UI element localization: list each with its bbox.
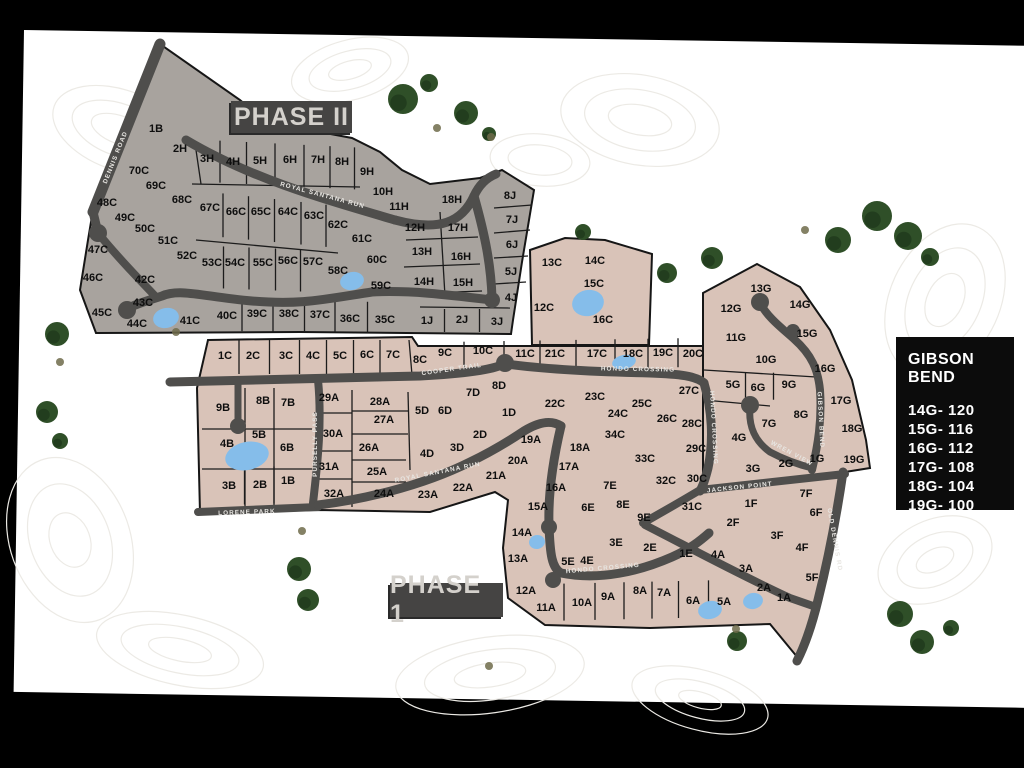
lot-label-1F: 1F: [745, 498, 758, 510]
lot-label-10G: 10G: [756, 354, 777, 366]
lot-label-1E: 1E: [679, 548, 692, 560]
lot-label-65C: 65C: [251, 206, 271, 218]
tree-shade: [38, 409, 50, 421]
lot-label-25A: 25A: [367, 466, 387, 478]
tree-shade: [922, 254, 932, 264]
lot-label-4B: 4B: [220, 438, 234, 450]
lot-label-5B: 5B: [252, 429, 266, 441]
lot-label-16A: 16A: [546, 482, 566, 494]
lot-label-20A: 20A: [508, 455, 528, 467]
lot-label-5A: 5A: [717, 596, 731, 608]
lot-label-19C: 19C: [653, 347, 673, 359]
lot-label-8C: 8C: [413, 354, 427, 366]
lot-label-38C: 38C: [279, 308, 299, 320]
lot-label-12A: 12A: [516, 585, 536, 597]
lot-label-46C: 46C: [83, 272, 103, 284]
lot-label-68C: 68C: [172, 194, 192, 206]
grass-tuft: [801, 226, 809, 234]
lot-label-13G: 13G: [751, 283, 772, 295]
lot-label-8H: 8H: [335, 156, 349, 168]
lot-label-8D: 8D: [492, 380, 506, 392]
tree-shade: [912, 638, 925, 651]
lot-label-6E: 6E: [581, 502, 594, 514]
lot-label-57C: 57C: [303, 256, 323, 268]
legend-item: 16G- 112: [908, 439, 1014, 458]
legend-item: 19G- 100: [908, 496, 1014, 515]
lot-label-59C: 59C: [371, 280, 391, 292]
lot-label-7A: 7A: [657, 587, 671, 599]
lot-label-62C: 62C: [328, 219, 348, 231]
tree-shade: [390, 95, 407, 112]
lot-label-8G: 8G: [794, 409, 809, 421]
lot-label-6A: 6A: [686, 595, 700, 607]
lot-label-49C: 49C: [115, 212, 135, 224]
tree-shade: [889, 610, 903, 624]
lot-label-29A: 29A: [319, 392, 339, 404]
lot-label-2G: 2G: [779, 458, 794, 470]
lot-label-2H: 2H: [173, 143, 187, 155]
lot-label-2B: 2B: [253, 479, 267, 491]
lot-label-26C: 26C: [657, 413, 677, 425]
lot-label-11A: 11A: [536, 602, 556, 614]
lot-label-3G: 3G: [746, 463, 761, 475]
lot-label-39C: 39C: [247, 308, 267, 320]
lot-label-26A: 26A: [359, 442, 379, 454]
lot-label-14C: 14C: [585, 255, 605, 267]
lot-label-69C: 69C: [146, 180, 166, 192]
grass-tuft: [56, 358, 64, 366]
lot-label-4H: 4H: [226, 156, 240, 168]
lot-label-70C: 70C: [129, 165, 149, 177]
tree-shade: [53, 439, 62, 448]
lot-label-11C: 11C: [515, 348, 535, 360]
lot-label-55C: 55C: [253, 257, 273, 269]
lot-label-10A: 10A: [572, 597, 592, 609]
lot-label-8J: 8J: [504, 190, 516, 202]
lot-label-14H: 14H: [414, 276, 434, 288]
street-label: HONDO CROSSING: [601, 365, 675, 373]
grass-tuft: [298, 527, 306, 535]
road-culdesac: [230, 418, 246, 434]
lot-label-32C: 32C: [656, 475, 676, 487]
lot-label-8B: 8B: [256, 395, 270, 407]
lot-label-11G: 11G: [726, 332, 746, 344]
lot-label-24A: 24A: [374, 488, 394, 500]
street-label: LORENE PARK: [218, 508, 276, 517]
lot-label-24C: 24C: [608, 408, 628, 420]
tree-shade: [864, 212, 881, 229]
lot-label-1A: 1A: [777, 592, 791, 604]
lot-label-7E: 7E: [603, 480, 616, 492]
phase1-sign: PHASE 1: [390, 583, 503, 617]
lot-label-30A: 30A: [323, 428, 343, 440]
lot-label-2C: 2C: [246, 350, 260, 362]
lot-label-17G: 17G: [831, 395, 852, 407]
lot-label-1B: 1B: [281, 475, 295, 487]
lot-label-7F: 7F: [800, 488, 813, 500]
tree-shade: [729, 638, 740, 649]
lot-label-17A: 17A: [559, 461, 579, 473]
grass-tuft: [732, 625, 740, 633]
lot-label-33C: 33C: [635, 453, 655, 465]
lot-label-40C: 40C: [217, 310, 237, 322]
lot-label-67C: 67C: [200, 202, 220, 214]
lot-label-13C: 13C: [542, 257, 562, 269]
lot-label-13H: 13H: [412, 246, 432, 258]
lot-label-6D: 6D: [438, 405, 452, 417]
lot-label-9A: 9A: [601, 591, 615, 603]
lot-label-4J: 4J: [505, 292, 517, 304]
lot-label-6B: 6B: [280, 442, 294, 454]
plat-map-page: DENNIS ROADROYAL SANTANA RUNCOOPER TRAIL…: [0, 0, 1024, 768]
lot-label-3E: 3E: [609, 537, 622, 549]
lot-label-9C: 9C: [438, 347, 452, 359]
lot-label-9B: 9B: [216, 402, 230, 414]
lot-label-15G: 15G: [797, 328, 818, 340]
road-culdesac: [89, 224, 107, 242]
lot-label-6C: 6C: [360, 349, 374, 361]
road-culdesac: [541, 519, 557, 535]
grass-tuft: [172, 328, 180, 336]
lot-label-29C: 29C: [686, 443, 706, 455]
lot-label-43C: 43C: [133, 297, 153, 309]
legend-item: 17G- 108: [908, 458, 1014, 477]
lot-label-48C: 48C: [97, 197, 117, 209]
lot-label-3C: 3C: [279, 350, 293, 362]
lot-label-31C: 31C: [682, 501, 702, 513]
lot-label-3F: 3F: [771, 530, 784, 542]
lot-label-3B: 3B: [222, 480, 236, 492]
lot-label-5H: 5H: [253, 155, 267, 167]
lot-label-54C: 54C: [225, 257, 245, 269]
lot-label-32A: 32A: [324, 488, 344, 500]
grass-tuft: [433, 124, 441, 132]
lot-label-36C: 36C: [340, 313, 360, 325]
lot-label-52C: 52C: [177, 250, 197, 262]
lot-label-4F: 4F: [796, 542, 809, 554]
tree-shade: [827, 236, 841, 250]
tree-shade: [421, 80, 431, 90]
lot-label-64C: 64C: [278, 206, 298, 218]
tree-shade: [47, 330, 60, 343]
lot-label-7G: 7G: [762, 418, 777, 430]
lot-label-6G: 6G: [751, 382, 766, 394]
grass-tuft: [487, 133, 495, 141]
tree-shade: [944, 626, 953, 635]
lot-label-31A: 31A: [319, 461, 339, 473]
lot-label-7D: 7D: [466, 387, 480, 399]
lot-label-17C: 17C: [587, 348, 607, 360]
lot-label-17H: 17H: [448, 222, 468, 234]
lot-label-6J: 6J: [506, 239, 518, 251]
phase1-sign-label: PHASE 1: [390, 571, 503, 629]
lot-label-45C: 45C: [92, 307, 112, 319]
lot-label-5D: 5D: [415, 405, 429, 417]
lot-label-12G: 12G: [721, 303, 742, 315]
lot-label-35C: 35C: [375, 314, 395, 326]
lot-label-9E: 9E: [637, 512, 650, 524]
lot-label-53C: 53C: [202, 257, 222, 269]
lot-label-2J: 2J: [456, 314, 468, 326]
lot-label-18G: 18G: [842, 423, 863, 435]
lot-label-13A: 13A: [508, 553, 528, 565]
legend-panel: GIBSON BEND 14G- 12015G- 11616G- 11217G-…: [896, 337, 1014, 510]
lot-label-19A: 19A: [521, 434, 541, 446]
lot-label-12H: 12H: [405, 222, 425, 234]
lot-label-14A: 14A: [512, 527, 532, 539]
road-culdesac: [484, 292, 500, 308]
legend-item: 18G- 104: [908, 477, 1014, 496]
lot-label-4A: 4A: [711, 549, 725, 561]
lot-label-51C: 51C: [158, 235, 178, 247]
lot-label-7C: 7C: [386, 349, 400, 361]
lot-label-2E: 2E: [643, 542, 656, 554]
lot-label-6H: 6H: [283, 154, 297, 166]
lot-label-5G: 5G: [726, 379, 741, 391]
lot-label-44C: 44C: [127, 318, 147, 330]
lot-label-3J: 3J: [491, 316, 503, 328]
lot-label-14G: 14G: [790, 299, 811, 311]
lot-label-2D: 2D: [473, 429, 487, 441]
lot-label-15H: 15H: [453, 277, 473, 289]
lot-label-9G: 9G: [782, 379, 797, 391]
lot-label-16G: 16G: [815, 363, 836, 375]
lot-label-20C: 20C: [683, 348, 703, 360]
lot-label-27C: 27C: [679, 385, 699, 397]
lot-label-10H: 10H: [373, 186, 393, 198]
lot-label-16H: 16H: [451, 251, 471, 263]
lot-label-47C: 47C: [88, 244, 108, 256]
road-culdesac: [545, 572, 561, 588]
lot-label-10C: 10C: [473, 345, 493, 357]
tree-shade: [299, 597, 311, 609]
lot-label-1C: 1C: [218, 350, 232, 362]
lot-label-41C: 41C: [180, 315, 200, 327]
lot-label-1D: 1D: [502, 407, 516, 419]
lot-label-5C: 5C: [333, 350, 347, 362]
lot-label-50C: 50C: [135, 223, 155, 235]
grass-tuft: [485, 662, 493, 670]
lot-label-34C: 34C: [605, 429, 625, 441]
lot-label-58C: 58C: [328, 265, 348, 277]
lot-label-11H: 11H: [389, 201, 409, 213]
lot-label-9H: 9H: [360, 166, 374, 178]
lot-label-2A: 2A: [757, 582, 771, 594]
lot-label-63C: 63C: [304, 210, 324, 222]
road-culdesac: [741, 396, 759, 414]
lot-label-7B: 7B: [281, 397, 295, 409]
lot-label-25C: 25C: [632, 398, 652, 410]
lot-label-61C: 61C: [352, 233, 372, 245]
lot-label-66C: 66C: [226, 206, 246, 218]
lot-label-15C: 15C: [584, 278, 604, 290]
lot-label-5E: 5E: [561, 556, 574, 568]
lot-label-23A: 23A: [418, 489, 438, 501]
lot-label-3A: 3A: [739, 563, 753, 575]
road-culdesac: [496, 354, 514, 372]
tree-shade: [576, 230, 585, 239]
phase2-sign: PHASE II: [231, 101, 352, 133]
lot-label-6F: 6F: [810, 507, 823, 519]
lot-label-28C: 28C: [682, 418, 702, 430]
tree-shade: [289, 565, 302, 578]
lot-label-5J: 5J: [505, 266, 517, 278]
lot-label-5F: 5F: [806, 572, 819, 584]
tree-shade: [896, 232, 911, 247]
lot-label-30C: 30C: [687, 473, 707, 485]
lot-label-15A: 15A: [528, 501, 548, 513]
lot-label-19G: 19G: [844, 454, 865, 466]
lot-label-3D: 3D: [450, 442, 464, 454]
lot-label-18C: 18C: [623, 348, 643, 360]
lot-label-28A: 28A: [370, 396, 390, 408]
lot-label-7J: 7J: [506, 214, 518, 226]
tree-shade: [703, 255, 715, 267]
tree-shade: [659, 270, 670, 281]
lot-label-12C: 12C: [534, 302, 554, 314]
lot-label-1J: 1J: [421, 315, 433, 327]
legend-item: 14G- 120: [908, 401, 1014, 420]
legend-items: 14G- 12015G- 11616G- 11217G- 10818G- 104…: [908, 401, 1014, 515]
lot-label-8E: 8E: [616, 499, 629, 511]
lot-label-8A: 8A: [633, 585, 647, 597]
lot-label-22A: 22A: [453, 482, 473, 494]
lot-label-18A: 18A: [570, 442, 590, 454]
lot-label-1B: 1B: [149, 123, 163, 135]
lot-label-7H: 7H: [311, 154, 325, 166]
lot-label-2F: 2F: [727, 517, 740, 529]
lot-label-22C: 22C: [545, 398, 565, 410]
lot-label-27A: 27A: [374, 414, 394, 426]
legend-item: 15G- 116: [908, 420, 1014, 439]
phase2-sign-label: PHASE II: [234, 103, 349, 132]
lot-label-4E: 4E: [580, 555, 593, 567]
lot-label-1G: 1G: [810, 453, 825, 465]
lot-label-56C: 56C: [278, 255, 298, 267]
lot-label-16C: 16C: [593, 314, 613, 326]
lot-label-23C: 23C: [585, 391, 605, 403]
lot-label-3H: 3H: [200, 153, 214, 165]
lot-label-60C: 60C: [367, 254, 387, 266]
lot-label-21C: 21C: [545, 348, 565, 360]
lot-label-4C: 4C: [306, 350, 320, 362]
lot-label-21A: 21A: [486, 470, 506, 482]
plat-map: DENNIS ROADROYAL SANTANA RUNCOOPER TRAIL…: [0, 0, 1024, 768]
lot-label-42C: 42C: [135, 274, 155, 286]
lot-label-18H: 18H: [442, 194, 462, 206]
legend-title: GIBSON BEND: [908, 351, 1014, 387]
lot-label-4D: 4D: [420, 448, 434, 460]
lot-label-4G: 4G: [732, 432, 747, 444]
lot-label-37C: 37C: [310, 309, 330, 321]
road-culdesac: [751, 293, 769, 311]
tree-shade: [456, 109, 469, 122]
